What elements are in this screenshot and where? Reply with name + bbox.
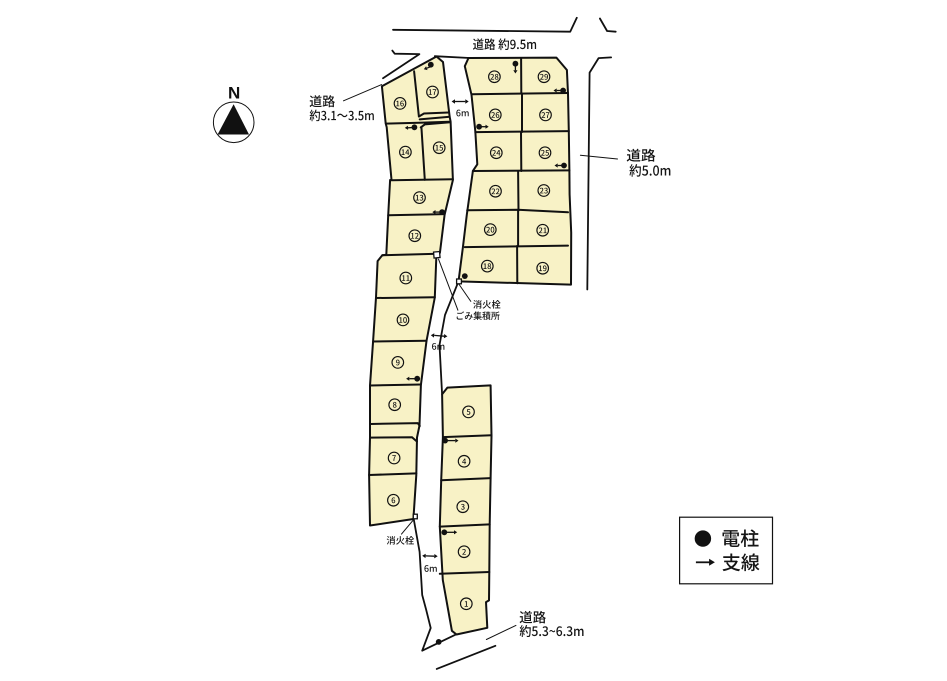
svg-text:N: N [228, 84, 240, 103]
